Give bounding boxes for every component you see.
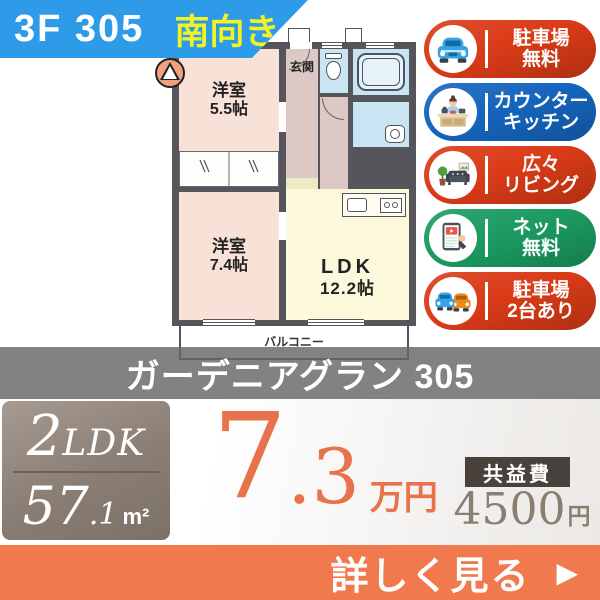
- two-cars-icon: [434, 282, 472, 320]
- badge-text: 無料: [522, 238, 560, 259]
- feature-badge-counter-kitchen: カウンター キッチン: [424, 83, 596, 141]
- balcony-door: [308, 319, 364, 326]
- feature-badge-spacious-living: 広々 リビング: [424, 146, 596, 204]
- tablet-video-icon: [434, 219, 472, 257]
- fee-value: 4500 円: [452, 488, 592, 532]
- feature-badge-free-internet: ネット 無料: [424, 209, 596, 267]
- badge-text: 駐車場: [512, 280, 569, 301]
- rent-decimal: .3: [287, 439, 360, 515]
- room-washroom: [353, 102, 409, 147]
- entrance-step: [286, 178, 318, 189]
- badge-text: キッチン: [503, 112, 579, 133]
- entry-door-opening: [290, 42, 312, 49]
- car-front-icon: [434, 30, 472, 68]
- rent-price: 7 .3 万円: [190, 399, 460, 541]
- small-window-panel: [345, 28, 362, 43]
- area-unit: m²: [122, 506, 149, 528]
- sink-icon: [385, 125, 405, 143]
- living-room-icon: [434, 156, 472, 194]
- room-bath: [353, 49, 409, 95]
- layout-label: 2 LDK: [27, 409, 145, 465]
- toilet-tank-icon: [325, 53, 342, 59]
- bathtub-icon: [357, 53, 405, 91]
- arrow-right-icon: ▶: [556, 559, 578, 587]
- floor-plan: 洋室 5.5帖 玄関: [170, 40, 420, 365]
- balcony-door: [203, 319, 255, 326]
- rent-integer: 7: [212, 397, 287, 515]
- building-name: ガーデニアグラン 305: [126, 349, 474, 398]
- layout-area-box: 2 LDK 57 .1 m²: [2, 401, 170, 540]
- badge-text: 駐車場: [512, 28, 569, 49]
- badge-text: ネット: [512, 217, 569, 238]
- badge-text: リビング: [503, 175, 579, 196]
- room-size: 7.4帖: [210, 257, 248, 275]
- badge-text: 無料: [522, 49, 560, 70]
- window: [322, 42, 342, 49]
- badge-text: 広々: [522, 154, 560, 175]
- room-bedroom-7-4: 洋室 7.4帖: [179, 192, 279, 320]
- fee-label-badge: 共益費: [465, 457, 570, 487]
- kitchen-counter-icon: [342, 193, 406, 217]
- fee-unit: 円: [567, 505, 590, 528]
- door-opening: [279, 212, 286, 240]
- room-size: 5.5帖: [210, 101, 248, 119]
- property-listing-card: 洋室 5.5帖 玄関: [0, 0, 600, 600]
- room-size: 12.2帖: [320, 279, 375, 299]
- building-name-band: ガーデニアグラン 305: [0, 347, 600, 399]
- summary-section: 2 LDK 57 .1 m² 7 .3 万円 共益費 4500 円: [0, 399, 600, 545]
- feature-badge-parking-two-cars: 駐車場 2台あり: [424, 272, 596, 330]
- closet-marks: [180, 152, 278, 186]
- window: [366, 42, 394, 49]
- details-button-label: 詳しく見る: [330, 545, 530, 600]
- details-button[interactable]: 詳しく見る ▶: [0, 545, 600, 600]
- feature-badge-parking-free: 駐車場 無料: [424, 20, 596, 78]
- room-name: 洋室: [212, 237, 246, 257]
- closet: [179, 151, 279, 187]
- rent-unit: 万円: [370, 481, 438, 515]
- floor-unit-label: 3F 305: [14, 8, 144, 51]
- counter-kitchen-icon: [434, 93, 472, 131]
- badge-text: 2台あり: [507, 301, 575, 322]
- room-bedroom-5-5: 洋室 5.5帖: [179, 49, 279, 151]
- divider: [13, 471, 159, 473]
- room-name: LDK: [321, 256, 374, 279]
- toilet-bowl-icon: [326, 61, 341, 80]
- area-label: 57 .1 m²: [23, 481, 150, 533]
- entry-door-panel: [288, 28, 310, 43]
- badge-text: カウンター: [493, 91, 588, 112]
- room-toilet: [320, 49, 348, 93]
- door-opening: [279, 102, 286, 132]
- room-name: 洋室: [212, 81, 246, 101]
- room-entrance-hall: 玄関: [286, 49, 318, 189]
